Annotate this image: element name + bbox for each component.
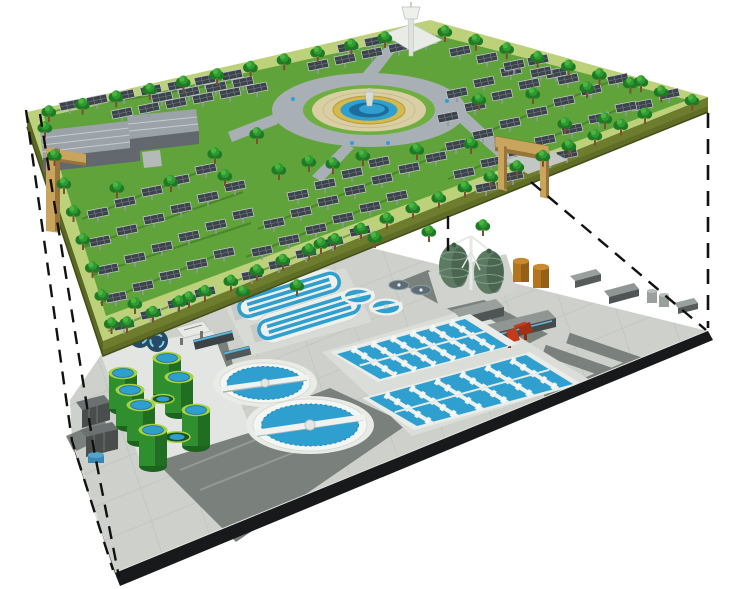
tree: [421, 225, 436, 242]
tree: [475, 219, 490, 236]
sludge-tank: [139, 424, 168, 472]
layered-facility-illustration: [0, 0, 740, 589]
illustration-stage: [0, 0, 740, 589]
digester-egg: [439, 243, 469, 288]
digester-egg: [474, 249, 504, 294]
clarifier-2: [253, 399, 367, 451]
clarifier-1: [220, 363, 310, 403]
greenhouse-path: [142, 150, 162, 168]
sludge-tank: [182, 404, 211, 452]
orange-storage-tanks: [513, 258, 549, 288]
